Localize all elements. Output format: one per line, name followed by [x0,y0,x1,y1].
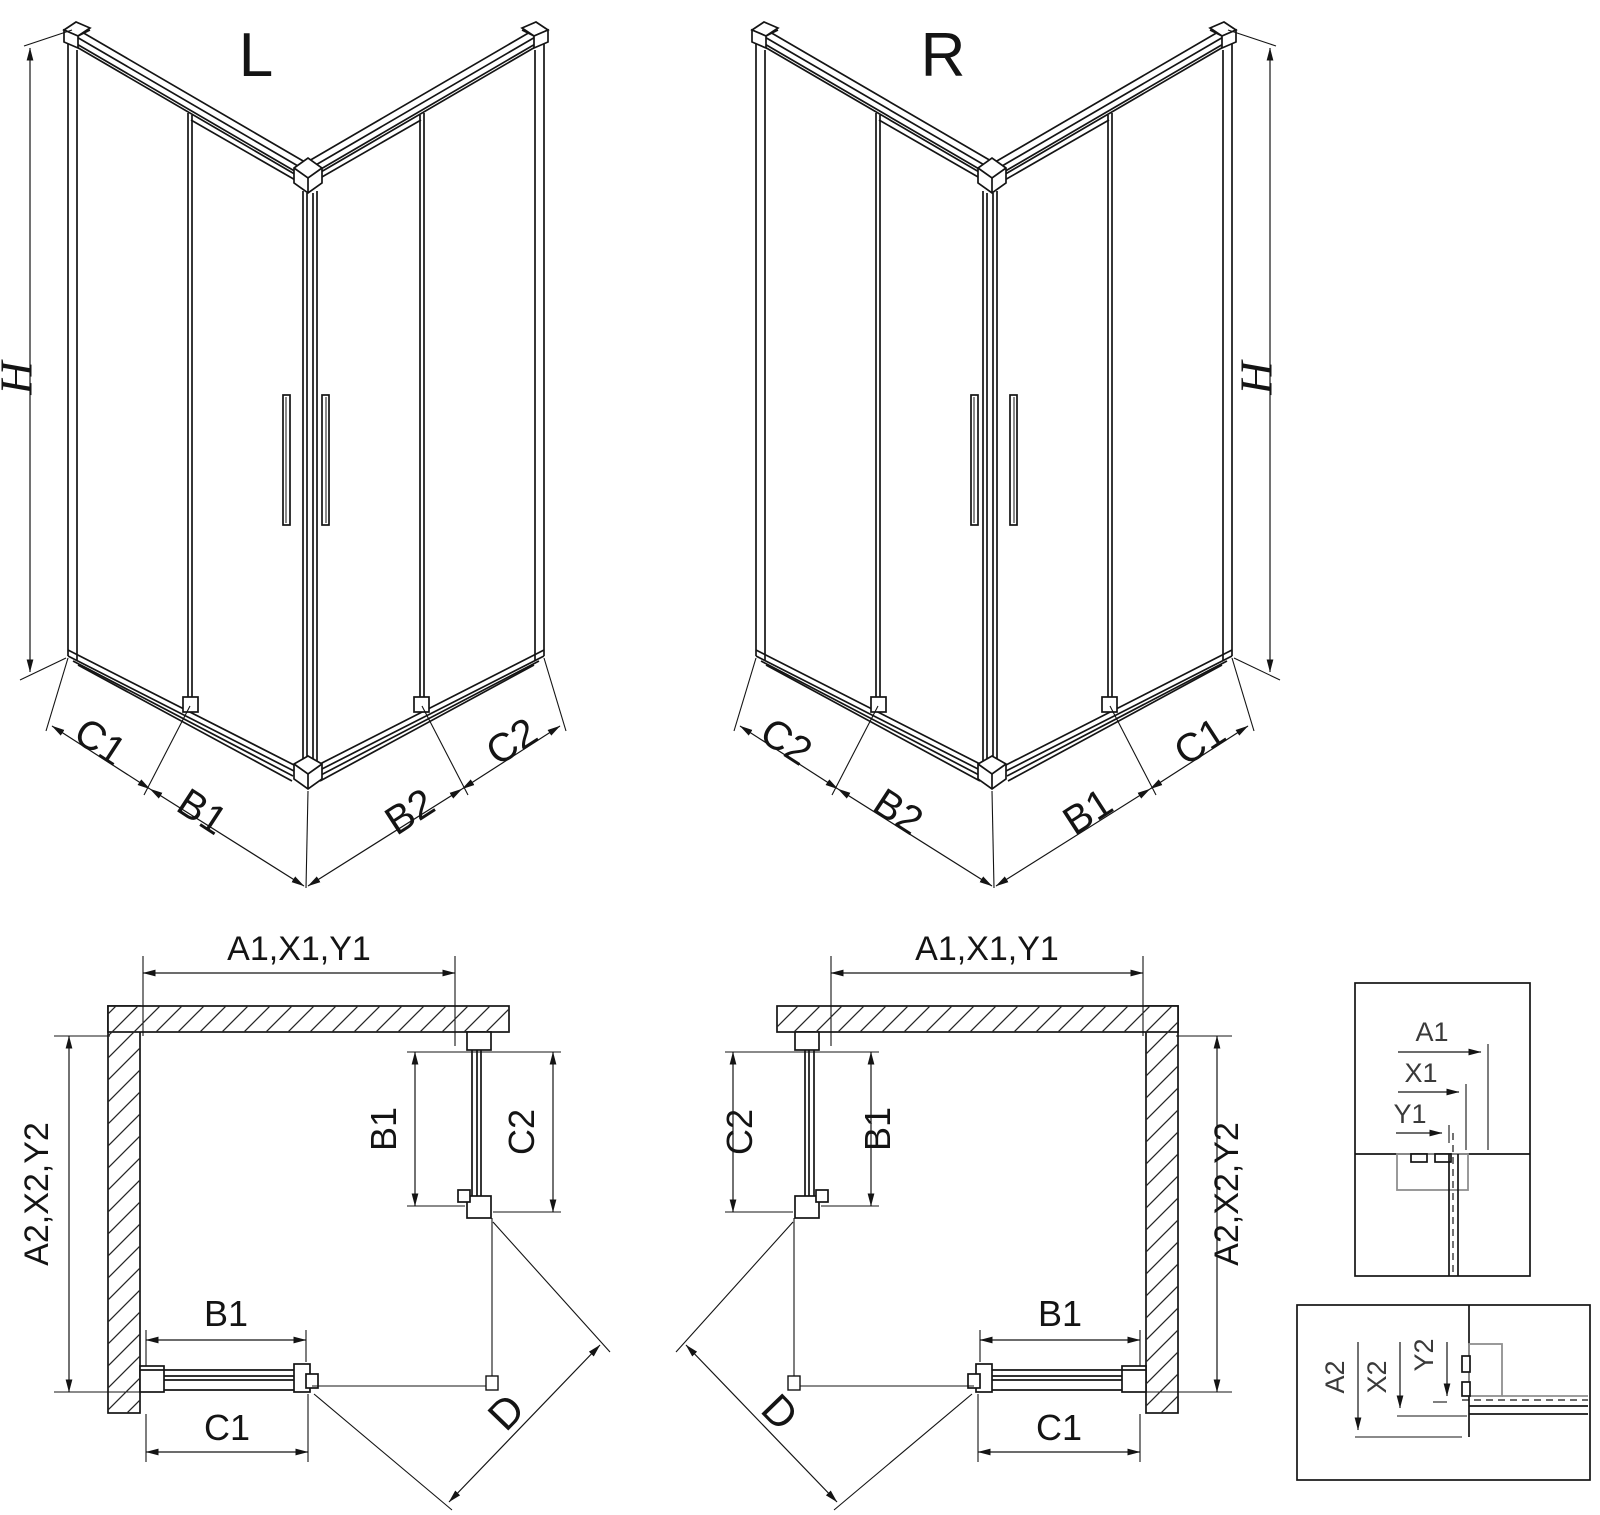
iso-left-dim-c1: C1 [67,710,134,775]
detail-width-x1-label: X1 [1404,1058,1437,1088]
iso-left-dim-c2: C2 [479,710,546,775]
detail-depth-x2-label: X2 [1362,1360,1392,1393]
plan-left-width-label: A1,X1,Y1 [227,930,371,968]
detail-width-a1-label: A1 [1415,1017,1448,1047]
plan-right-depth-label: A2,X2,Y2 [1208,1122,1246,1266]
iso-left-title: L [239,21,273,90]
plan-left-diagonal-label: D [479,1385,534,1439]
plan-left-panel-front-label: C1 [204,1407,250,1448]
detail-depth-a2-label: A2 [1320,1360,1350,1393]
plan-left-panel-side-label: C2 [501,1109,542,1155]
plan-right-panel-side-label: C2 [719,1109,760,1155]
plan-right-width-label: A1,X1,Y1 [915,930,1059,968]
iso-right-title: R [921,21,966,90]
plan-right-door-front-label: B1 [1038,1293,1082,1334]
plan-right-door-side-label: B1 [857,1107,898,1151]
plan-left-depth-label: A2,X2,Y2 [18,1122,56,1266]
iso-right-dim-b1: B1 [1055,780,1120,844]
iso-right-height-label: H [1231,359,1282,396]
drawing-page: L H C1 B1 B2 C2 R H C2 B2 B1 C1 A1,X1,Y1… [0,0,1600,1515]
plan-right-panel-front-label: C1 [1036,1407,1082,1448]
iso-right-dim-b2: B2 [865,780,930,844]
detail-width-y1-label: Y1 [1393,1099,1426,1129]
iso-right-dim-c2: C2 [753,710,820,775]
iso-left-dim-b2: B2 [377,780,442,844]
plan-right-diagonal-label: D [753,1385,808,1439]
technical-drawing: L H C1 B1 B2 C2 R H C2 B2 B1 C1 A1,X1,Y1… [0,0,1600,1515]
iso-left-dim-b1: B1 [169,780,234,844]
iso-left-height-label: H [0,359,42,396]
plan-left-door-front-label: B1 [204,1293,248,1334]
iso-right-dim-c1: C1 [1167,710,1234,775]
detail-depth-y2-label: Y2 [1409,1338,1439,1371]
wall-hatching [108,1006,1178,1413]
plan-left-door-side-label: B1 [363,1107,404,1151]
